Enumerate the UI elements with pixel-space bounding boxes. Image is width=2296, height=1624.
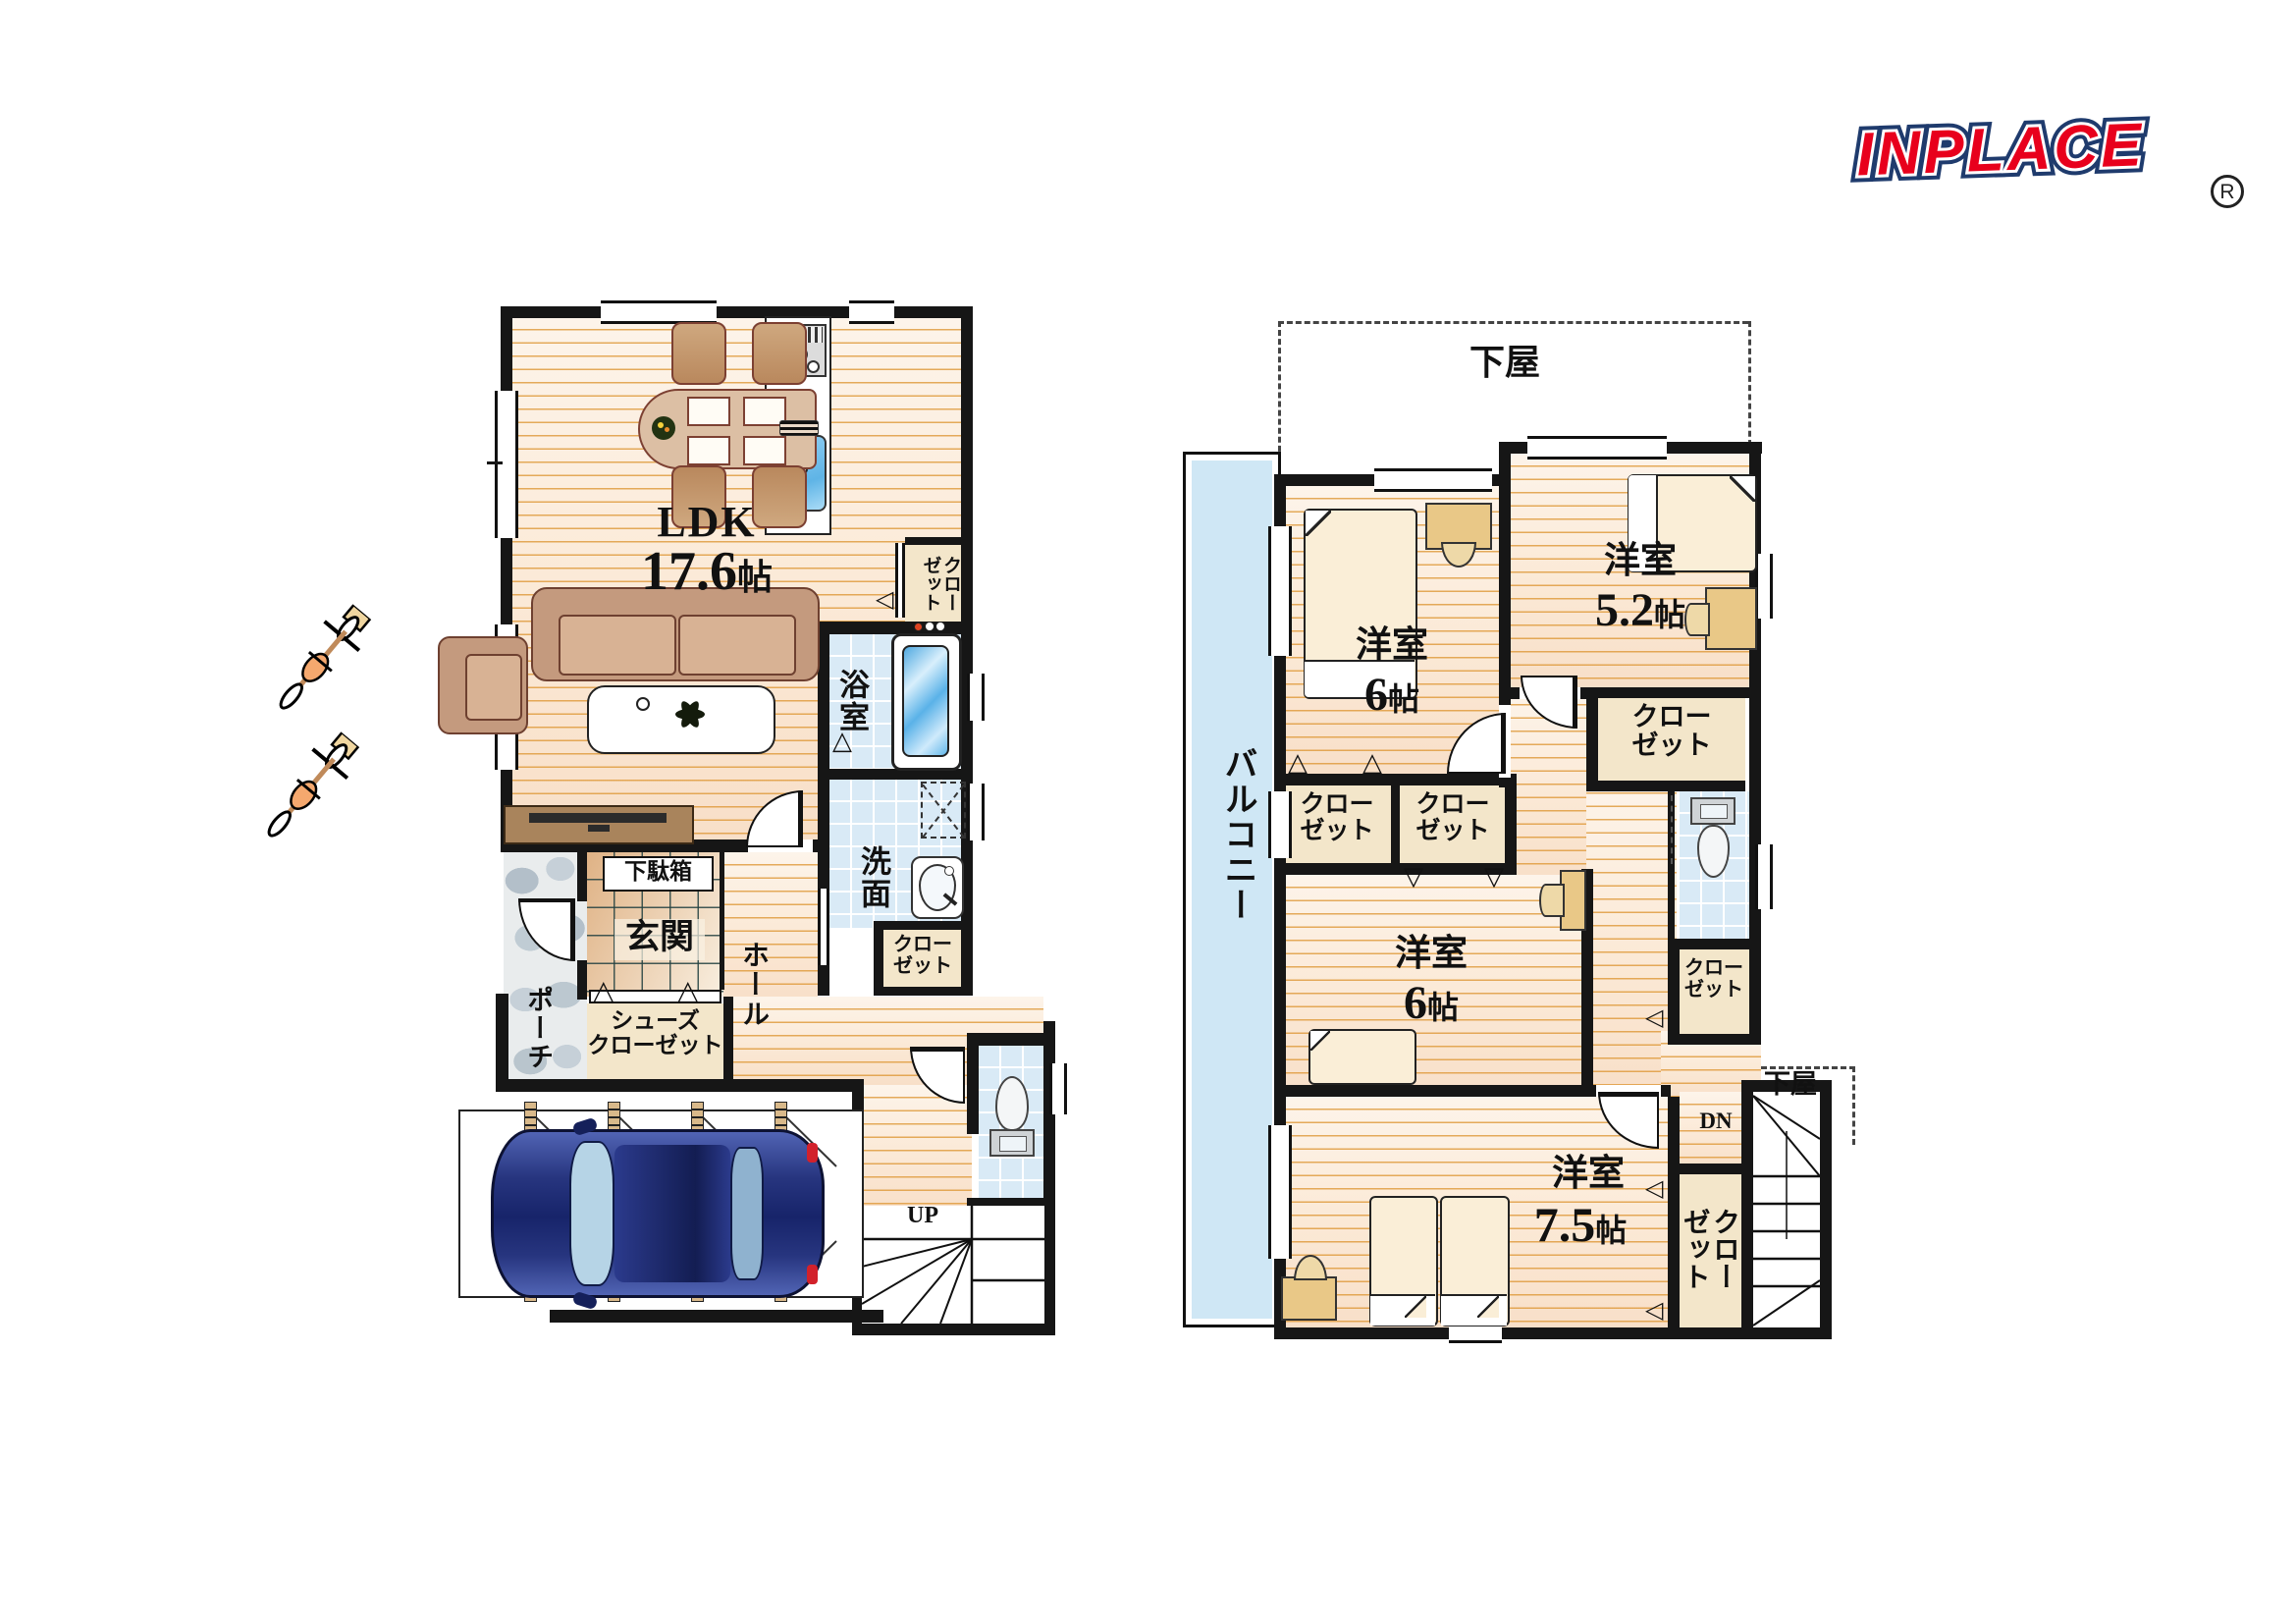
placemat [743,436,786,465]
toilet-tank-lid [999,1136,1027,1152]
room-s-size-unit: 帖 [1595,1213,1627,1248]
bed-fold [1405,1296,1426,1318]
wall [852,1323,1055,1335]
getabako-label: 下駄箱 [603,860,714,890]
dining-chair [671,322,726,385]
wall [577,1079,864,1092]
room-ne-size-num: 5.2 [1595,584,1654,636]
stairs-dn-label: DN [1690,1110,1741,1137]
closet-door-panel [895,543,905,618]
wall [577,852,587,901]
cup-icon [636,697,650,711]
opening-marker: ▽ [1484,862,1504,892]
window [1755,554,1773,619]
opening-marker: △ [1362,748,1382,778]
genkan-label: 玄関 [614,919,705,960]
wall [813,839,829,852]
geya-top-label: 下屋 [1451,344,1559,389]
bed-fold [1310,1031,1330,1051]
wall [905,537,961,545]
car-taillight [807,1265,818,1284]
tv-board [504,805,694,844]
room-s-size: 7.5帖 [1472,1198,1688,1257]
shoes-closet-line2: クローゼット [588,1033,723,1057]
basin-drain [944,866,954,876]
placemat [687,436,730,465]
ground-line [550,1310,883,1323]
dining-chair [752,322,807,385]
armchair-seat [465,654,522,721]
opening-marker: ◁ [876,585,893,613]
window [495,391,518,538]
bed-fold [1477,1296,1499,1318]
wall [967,1033,1055,1046]
room-nw-size-unit: 帖 [1388,681,1419,717]
table-plant-icon [652,416,675,440]
tv-stand [588,825,610,832]
washbasin-icon [911,856,964,919]
closet-a-label: クローゼット [1293,791,1381,854]
ldk-size: 17.6帖 [569,542,844,603]
hall-label: ホール [730,911,768,1058]
bed-fold [1730,476,1755,502]
wall [496,994,508,1092]
ldk-size-num: 17.6 [641,541,737,602]
bed-fold [1306,511,1331,536]
closet-e-label: クローゼット [1684,958,1743,1027]
faucet-dot [925,622,934,631]
closet-ne-label: クローゼット [1628,703,1716,774]
bicycle-icon [253,590,388,732]
room-ne-label: 洋室 [1557,542,1724,585]
wall [1586,781,1745,791]
window [1049,1063,1067,1114]
room-s-size-num: 7.5 [1534,1197,1596,1252]
washer-space [921,782,966,839]
room-nw-size: 6帖 [1313,670,1470,727]
bed [1369,1196,1438,1326]
sliding-door [818,889,829,965]
flower-dot [665,427,669,432]
pocket-door-dash [1671,795,1673,864]
logo-text: INPLACE [1855,110,2145,189]
placemat [687,397,730,426]
bed [1308,1029,1416,1085]
faucet-dot-red [914,623,923,631]
ldk-closet-label: クローゼット [907,548,960,619]
coffee-table [587,685,775,754]
tray-icon [779,420,819,436]
wall [1668,1164,1752,1174]
wall [1668,949,1680,1045]
opening-marker: △ [677,974,699,1006]
window [1449,1324,1502,1343]
wash-closet-label: クローゼット [891,935,954,986]
wall [874,921,883,996]
opening-marker: △ [832,727,852,756]
car-taillight [807,1143,818,1163]
wall [1274,1327,1832,1339]
window [601,300,717,324]
toilet-tank [989,1129,1035,1157]
wall [501,306,512,852]
stairs-up-label: UP [891,1204,954,1231]
closet-b-label: クローゼット [1409,791,1497,854]
wall [1586,687,1760,698]
stair-landing-floor [864,1085,972,1213]
toilet-tank [1690,797,1735,825]
wall [1274,774,1517,785]
geya-bottom-label: 下屋 [1759,1070,1822,1102]
room-mid-size-num: 6 [1404,977,1427,1029]
wall [1505,774,1517,863]
opening-marker: △ [1288,748,1308,778]
flower-dot [658,422,664,428]
toilet-tank-lid [1700,804,1728,819]
armchair [438,636,528,734]
window [1374,468,1492,492]
registered-mark: R [2211,175,2244,208]
bicycle-icon [241,718,376,860]
window [849,300,894,324]
wall [720,852,724,990]
desk [1281,1276,1337,1321]
room-ne-size-unit: 帖 [1654,597,1685,632]
car-rear-glass [730,1147,764,1280]
car-roof [614,1145,730,1282]
window [1268,526,1292,656]
geya-outline-right [1748,321,1751,446]
opening-marker: ▽ [1404,862,1423,892]
sofa-seat [678,615,796,676]
wall [967,1046,979,1134]
brand-logo: INPLACE INPLACE INPLACE [1855,108,2222,229]
tv-icon [529,813,667,823]
wall [1274,863,1517,875]
opening-marker: ◁ [1645,1003,1663,1031]
wall [1668,1034,1761,1045]
car [491,1129,825,1298]
burner [807,360,820,373]
window-tick [487,461,503,464]
opening-marker: △ [593,974,614,1006]
washroom-label: 洗面 [850,829,889,927]
wall [577,960,587,1000]
desk-chair [1539,884,1565,917]
bathtub-water [902,645,949,757]
faucet-dot [935,622,945,631]
room-nw-label: 洋室 [1313,626,1470,670]
window [1755,844,1773,909]
wall [501,306,973,318]
room-nw-size-num: 6 [1364,669,1388,721]
ldk-label: LDK [589,499,825,546]
bathtub-icon [891,633,962,771]
room-mid-label: 洋室 [1353,935,1510,978]
car-windshield [569,1141,614,1286]
window [967,784,985,840]
wall [1668,939,1761,949]
wall [874,987,973,996]
window [1268,791,1292,858]
balcony-label: バルコニー [1207,731,1255,938]
closet-s-label: クローゼット [1682,1200,1738,1298]
porch-label: ポーチ [516,974,552,1082]
wall [1741,1092,1753,1339]
room-mid-size: 6帖 [1353,978,1510,1033]
sofa-seat [559,615,676,676]
shoes-closet-label: シューズ クローゼット [587,1009,723,1074]
wall [1391,785,1400,863]
window [1268,1125,1292,1259]
window [967,674,985,721]
opening-marker: ◁ [1645,1174,1663,1202]
wall [1586,687,1598,791]
shoes-closet-line1: シューズ [611,1008,700,1033]
opening-marker: ◁ [1645,1296,1663,1324]
ldk-size-unit: 帖 [737,558,773,597]
toilet-icon [995,1076,1029,1131]
room-mid-size-unit: 帖 [1427,990,1459,1025]
window [1527,436,1667,460]
room-ne-size: 5.2帖 [1547,585,1734,642]
